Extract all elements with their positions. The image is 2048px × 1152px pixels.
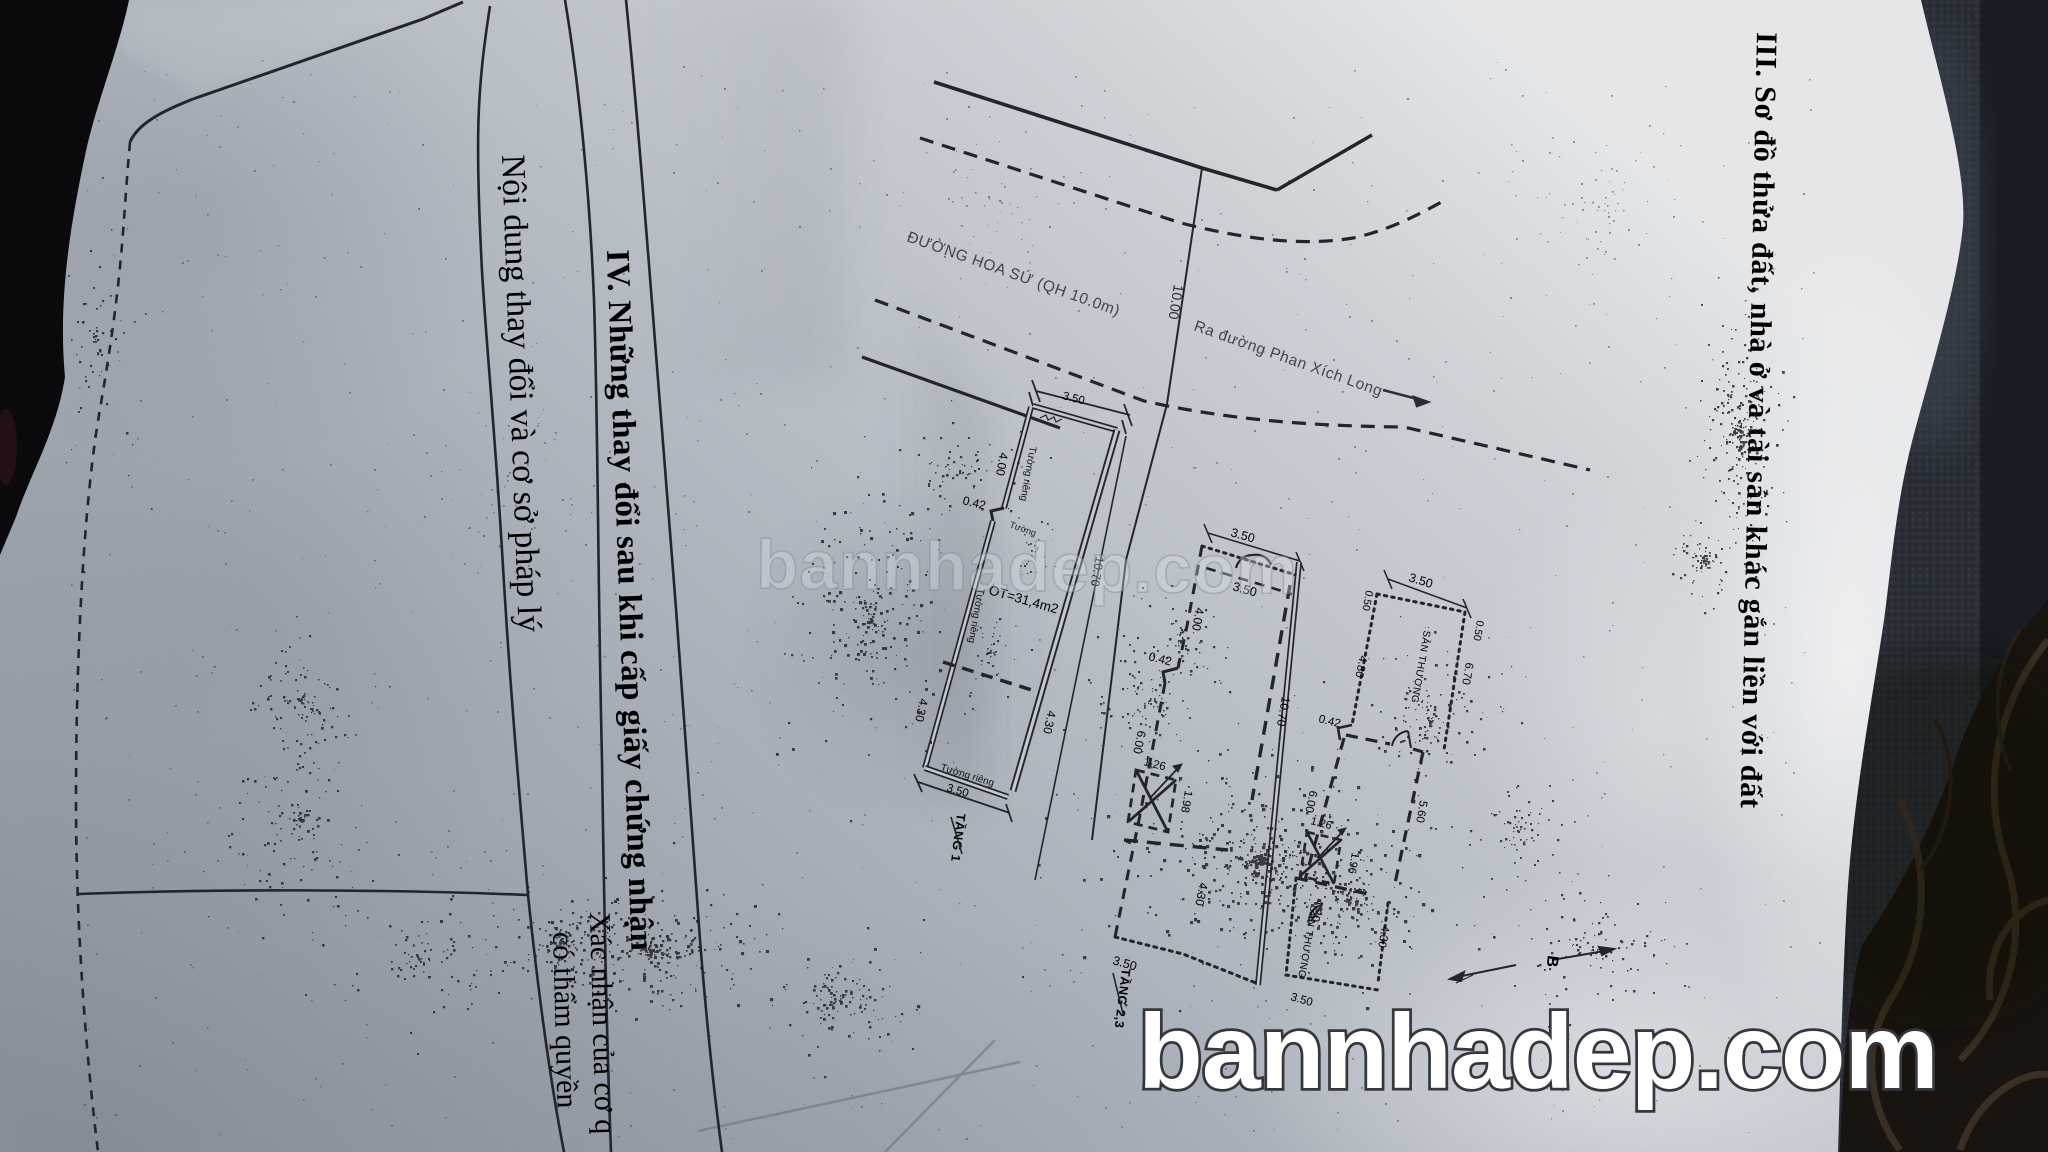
svg-text:B: B — [1543, 955, 1561, 969]
svg-text:có thẩm quyền: có thẩm quyền — [546, 931, 584, 1108]
svg-text:bannhadep.com: bannhadep.com — [756, 526, 1299, 609]
svg-text:bannhadep.com: bannhadep.com — [1138, 993, 1938, 1111]
svg-text:Xác nhận của cơ q: Xác nhận của cơ q — [583, 911, 622, 1134]
